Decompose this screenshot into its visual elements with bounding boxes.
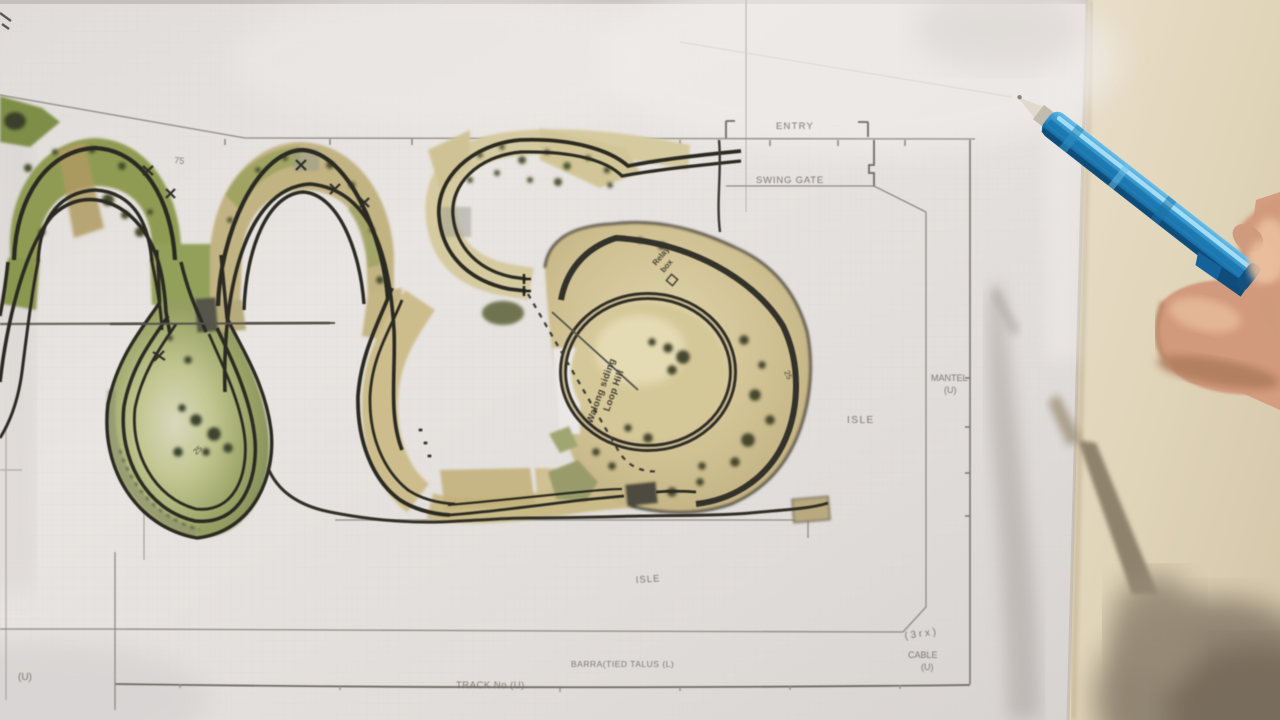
svg-text:ENTRY: ENTRY bbox=[776, 121, 814, 132]
svg-text:75: 75 bbox=[174, 155, 185, 166]
svg-text:TRACK No (U): TRACK No (U) bbox=[456, 680, 525, 691]
svg-text:(U): (U) bbox=[18, 672, 32, 683]
svg-text:SWING GATE: SWING GATE bbox=[756, 175, 824, 186]
svg-text:BARRA(TIED TALUS (L): BARRA(TIED TALUS (L) bbox=[571, 659, 674, 669]
svg-text:ISLE: ISLE bbox=[635, 573, 660, 586]
svg-text:(U): (U) bbox=[944, 385, 957, 395]
svg-text:CABLE: CABLE bbox=[908, 650, 938, 660]
svg-text:ISLE: ISLE bbox=[847, 415, 875, 426]
svg-text:MANTEL: MANTEL bbox=[931, 373, 968, 383]
svg-text:(U): (U) bbox=[921, 662, 934, 672]
